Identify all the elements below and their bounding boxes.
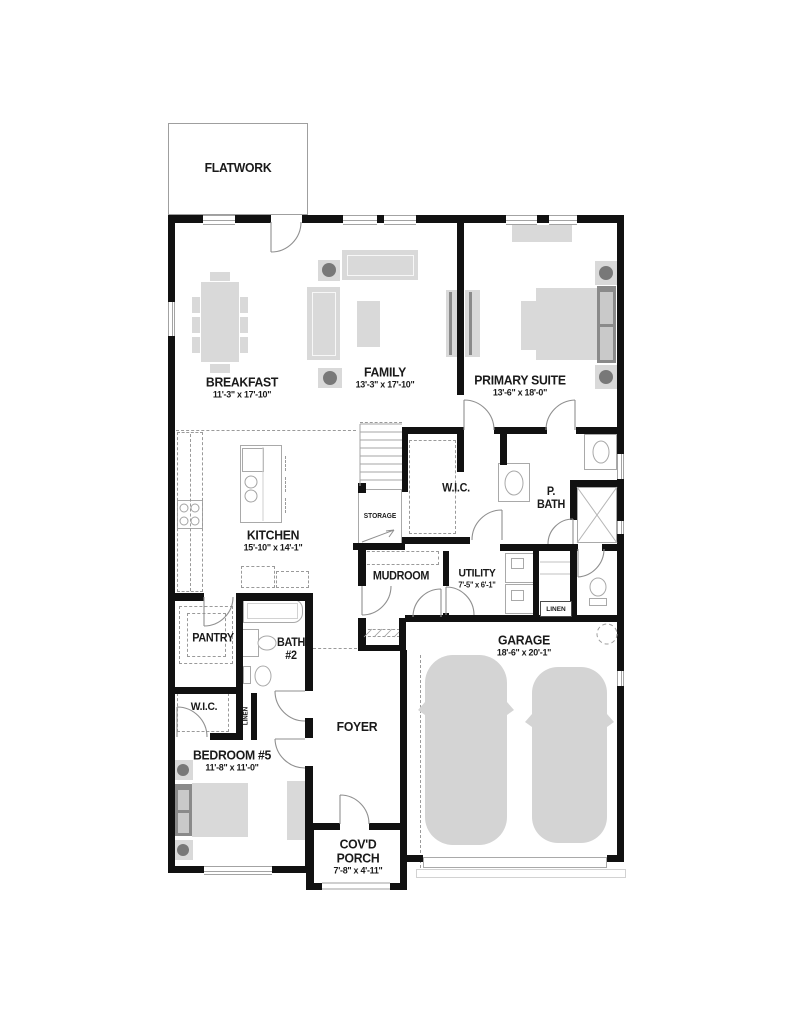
door-swing-arc bbox=[578, 549, 604, 577]
linen-closet-label-box: LINEN bbox=[540, 601, 572, 617]
linen-shelf-lines bbox=[540, 562, 570, 574]
room-label-mudroom: MUDROOM bbox=[373, 571, 429, 584]
room-label-storage: STORAGE bbox=[364, 513, 396, 521]
burner-circle bbox=[180, 517, 188, 525]
door-swing-arc bbox=[271, 222, 301, 252]
sink-oval bbox=[258, 636, 276, 650]
room-label-utility: UTILITY 7'-5" x 6'-1" bbox=[458, 568, 495, 591]
burner-circle bbox=[180, 504, 188, 512]
room-label-wic-primary: W.I.C. bbox=[442, 483, 470, 496]
car-mirror bbox=[507, 702, 514, 715]
burner-circle bbox=[245, 490, 257, 502]
room-label-covered-porch: COV'D PORCH 7'-8" x 4'-11" bbox=[334, 838, 383, 877]
porch-open-edge bbox=[322, 883, 390, 889]
room-label-bedroom5: BEDROOM #5 11'-8" x 11'-0" bbox=[193, 749, 271, 774]
toilet-bowl bbox=[255, 666, 271, 686]
room-label-foyer: FOYER bbox=[337, 720, 378, 734]
room-label-primary-suite: PRIMARY SUITE 13'-6" x 18'-0" bbox=[474, 374, 565, 399]
door-swing-arc bbox=[413, 589, 441, 617]
room-label-garage: GARAGE 18'-6" x 20'-1" bbox=[497, 634, 551, 659]
car-mirror bbox=[418, 702, 425, 715]
room-label-pantry: PANTRY bbox=[192, 633, 234, 646]
car-mirror bbox=[607, 714, 614, 727]
door-swing-arc bbox=[275, 739, 305, 768]
door-swing-arc bbox=[204, 597, 233, 626]
room-label-flatwork: FLATWORK bbox=[205, 161, 272, 175]
burner-circle bbox=[191, 517, 199, 525]
burner-circle bbox=[191, 504, 199, 512]
car bbox=[425, 655, 507, 845]
room-label-bath2: BATH #2 bbox=[277, 637, 305, 663]
room-label-linen-bedroom5: LINEN bbox=[243, 707, 250, 725]
car-mirror bbox=[525, 714, 532, 727]
stair-direction-arrow bbox=[362, 530, 394, 542]
room-label-family: FAMILY 13'-3" x 17'-10" bbox=[356, 366, 415, 391]
floor-plan: FLATWORK BREAKFAST 11'-3" x 17'-10" FAMI… bbox=[0, 0, 792, 1024]
door-swing-arc bbox=[548, 519, 573, 544]
toilet-bowl bbox=[590, 578, 606, 596]
room-label-breakfast: BREAKFAST 11'-3" x 17'-10" bbox=[206, 376, 278, 401]
door-swing-arc bbox=[275, 691, 305, 721]
plan-shapes bbox=[0, 0, 792, 1024]
shower-glass-x bbox=[577, 487, 617, 543]
door-swing-arc bbox=[340, 795, 369, 824]
door-swing-arc bbox=[362, 586, 391, 615]
sink-oval bbox=[505, 471, 523, 495]
door-swing-arc bbox=[472, 510, 502, 540]
staircase-treads bbox=[360, 424, 402, 486]
sink-oval bbox=[593, 441, 609, 463]
car bbox=[532, 667, 607, 843]
door-swing-arc bbox=[546, 400, 575, 430]
door-swing-arc bbox=[464, 400, 494, 430]
room-label-kitchen: KITCHEN 15'-10" x 14'-1" bbox=[244, 529, 303, 554]
step-hatch bbox=[364, 629, 399, 637]
door-swing-arc bbox=[446, 587, 474, 615]
water-heater-icon bbox=[597, 624, 617, 644]
burner-circle bbox=[245, 476, 257, 488]
room-label-primary-bath: P. BATH bbox=[537, 486, 565, 512]
room-label-wic-bedroom5: W.I.C. bbox=[191, 701, 217, 713]
